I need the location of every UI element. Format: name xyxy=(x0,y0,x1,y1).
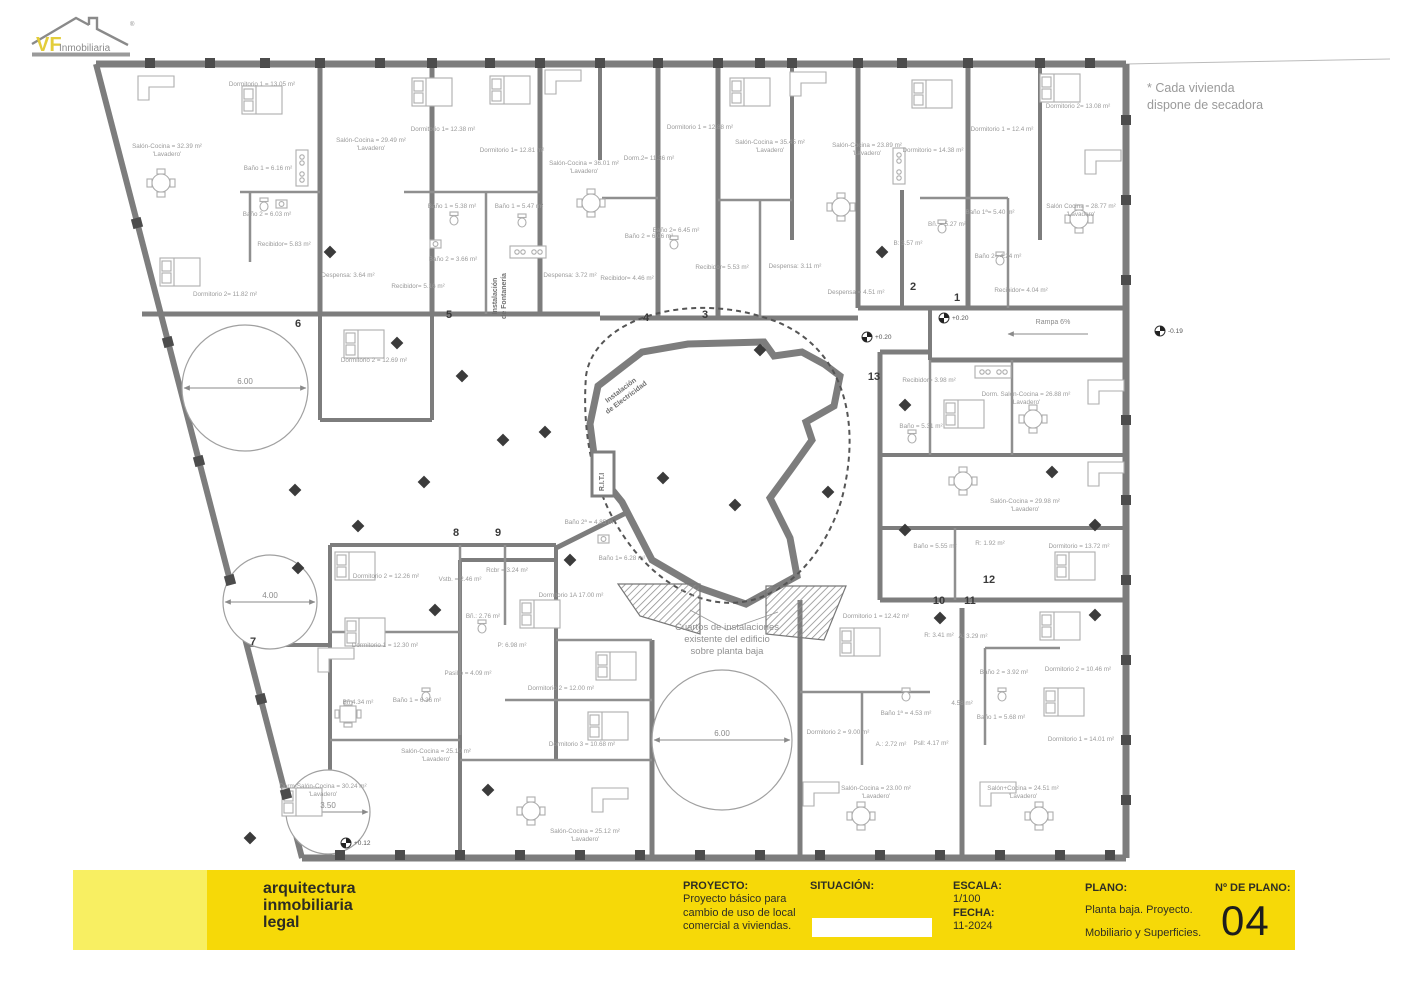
room-label: Salón-Cocina = 25.12 m² xyxy=(550,828,620,835)
room-label: Baño 1 = 6.36 m² xyxy=(393,697,441,704)
sheet-number-value: 04 xyxy=(1221,897,1291,945)
door-pier-diamond xyxy=(934,612,947,625)
sheet-title-line2: Mobiliario y Superficies. xyxy=(1085,927,1201,941)
room-label: Dormitorio 2 = 9.00 m² xyxy=(807,729,870,736)
room-label: Dormitorio 1 = 14.01 m² xyxy=(1048,736,1114,743)
sheet-title-line1: Planta baja. Proyecto. xyxy=(1085,904,1201,918)
dimension-label: 4.00 xyxy=(262,591,278,600)
door-pier-diamond xyxy=(899,524,912,537)
room-label: Dormitorio 1 = 13.05 m² xyxy=(229,81,295,88)
scale-date-field: ESCALA: 1/100 FECHA: 11-2024 xyxy=(953,880,1002,933)
door-pier-diamond xyxy=(391,337,404,350)
room-label: Dorm-Salón-Cocina = 30.24 m² xyxy=(279,783,366,790)
room-label: Bñ 4.34 m² xyxy=(343,699,374,706)
elevation-marker-icon xyxy=(939,313,949,323)
company-logo: VF Inmobiliaria ® xyxy=(30,14,150,58)
room-label: Recibidor= 5.16 m² xyxy=(391,283,444,290)
room-label: Salón-Cocina = 29.98 m² xyxy=(990,498,1060,505)
room-label: Dormitorio 2= 11.82 m² xyxy=(193,291,257,298)
room-label: Dormitorio 1 = 12.4 m² xyxy=(971,126,1034,133)
door-pier-diamond xyxy=(456,370,469,383)
door-pier-diamond xyxy=(418,476,431,489)
logo-registered-mark: ® xyxy=(130,21,135,28)
room-label: Baño 2ª = 4.85 m² xyxy=(565,519,616,526)
door-pier-diamond xyxy=(429,604,442,617)
room-label: Salón+Cocina = 24.51 m² xyxy=(987,785,1058,792)
dimension-label: 3.50 xyxy=(320,801,336,810)
room-label: Despensa: 3.11 m² xyxy=(769,263,822,270)
room-label: Recibidor= 4.46 m² xyxy=(600,275,653,282)
room-label: Dormitorio = 14.38 m² xyxy=(902,147,963,154)
project-line1: Proyecto básico para xyxy=(683,893,796,907)
unit-number: 8 xyxy=(453,527,459,539)
room-label: 'Lavadero' xyxy=(153,151,182,158)
unit-number: 7 xyxy=(250,636,256,648)
room-label: Baño 1 = 5.38 m² xyxy=(428,203,476,210)
room-label: Dormitorio 2 = 12.69 m² xyxy=(341,357,407,364)
room-label: Baño 2 = 3.92 m² xyxy=(980,669,1028,676)
room-label: Dormitorio 1= 12.38 m² xyxy=(411,126,476,133)
room-label: Dormitorio 2 = 12.00 m² xyxy=(528,685,594,692)
room-label: Baño 2= 6.45 m² xyxy=(653,227,700,234)
room-label: Recibidor= 5.53 m² xyxy=(695,264,748,271)
room-label: Bñ. = 5.27 m² xyxy=(928,221,966,228)
room-label: Recibidor= 4.04 m² xyxy=(994,287,1047,294)
unit-number: 6 xyxy=(295,318,301,330)
room-label: Baño 2 = 6.03 m² xyxy=(243,211,291,218)
door-pier-diamond xyxy=(324,246,337,259)
logo-underline xyxy=(32,53,130,57)
door-pier-diamond xyxy=(539,426,552,439)
room-label: 'Lavadero' xyxy=(422,756,451,763)
central-note-line: existente del edificio xyxy=(684,634,770,645)
room-label: Salón-Cocina = 23.00 m² xyxy=(841,785,911,792)
room-label: 'Lavadero' xyxy=(862,793,891,800)
room-label: 'Lavadero' xyxy=(571,836,600,843)
room-label: B: 3.57 m² xyxy=(893,240,922,247)
room-label: A: 3.29 m² xyxy=(958,633,987,640)
rotated-annotation: de Fontanería xyxy=(501,273,508,319)
door-pier-diamond xyxy=(899,399,912,412)
room-label: Baño 1 = 5.68 m² xyxy=(977,714,1025,721)
studio-name-line3: legal xyxy=(263,914,355,931)
rotated-annotation: Instalación xyxy=(492,278,499,315)
scale-value: 1/100 xyxy=(953,893,1002,907)
room-label: Dormitorio 2= 13.08 m² xyxy=(1046,103,1111,110)
door-pier-diamond xyxy=(564,554,577,567)
room-label: Dorm. Salón-Cocina = 26.88 m² xyxy=(982,391,1071,398)
room-label: Dormitorio 2 = 10.46 m² xyxy=(1045,666,1111,673)
room-label: Salón-Cocina = 29.49 m² xyxy=(336,137,406,144)
unit-number: 5 xyxy=(446,309,452,321)
room-label: 'Lavadero' xyxy=(570,168,599,175)
scale-label: ESCALA: xyxy=(953,880,1002,893)
door-pier-diamond xyxy=(244,832,257,845)
dimension-label: 6.00 xyxy=(237,377,253,386)
room-label: Dormitorio 1 = 12.30 m² xyxy=(352,642,418,649)
room-label: Baño 1ª = 4.53 m² xyxy=(881,710,932,717)
door-pier-diamond xyxy=(289,484,302,497)
rotated-annotation: R.I.T.I xyxy=(599,473,606,491)
room-label: P: 6.98 m² xyxy=(497,642,526,649)
door-pier-diamond xyxy=(1089,609,1102,622)
location-field: SITUACIÓN: xyxy=(810,880,874,893)
room-label: Salón Cocina = 28.77 m² xyxy=(1046,203,1115,210)
room-label: 'Lavadero' xyxy=(1067,211,1096,218)
room-label: Psll: 4.17 m² xyxy=(914,740,949,747)
sheet-number-label: Nº DE PLANO: xyxy=(1215,882,1291,895)
room-label: Baño 2 = 6.06 m² xyxy=(625,233,673,240)
property-line xyxy=(1126,59,1390,64)
room-label: Salón-Cocina = 23.89 m² xyxy=(832,142,902,149)
room-label: Dormitorio 1A 17.00 m² xyxy=(539,592,604,599)
elevation-marker-icon xyxy=(341,838,351,848)
floor-plan: Dormitorio 1 = 13.05 m²Salón-Cocina = 32… xyxy=(0,0,1415,1000)
logo-name-text: Inmobiliaria xyxy=(59,43,111,54)
central-note-line: sobre planta baja xyxy=(691,646,765,657)
room-label: Salón-Cocina = 35.45 m² xyxy=(735,139,805,146)
project-line2: cambio de uso de local xyxy=(683,907,796,921)
room-label: 'Lavadero' xyxy=(756,147,785,154)
unit-number: 11 xyxy=(964,595,976,607)
elevation-value: +0.20 xyxy=(952,315,969,322)
unit-number: 1 xyxy=(954,292,960,304)
room-label: Baño 1= 6.28 m² xyxy=(599,555,646,562)
location-label: SITUACIÓN: xyxy=(810,880,874,893)
dryer-note-line1: * Cada vivienda xyxy=(1147,80,1263,97)
studio-name: arquitectura inmobiliaria legal xyxy=(263,880,355,931)
unit-number: 3 xyxy=(702,309,708,321)
room-label: Salón-Cocina = 36.01 m² xyxy=(549,160,619,167)
room-label: 'Lavadero' xyxy=(357,145,386,152)
room-label: Salón-Cocina = 32.39 m² xyxy=(132,143,202,150)
central-note-line: Cuartos de instalaciones xyxy=(675,622,779,633)
drawing-sheet: Dormitorio 1 = 13.05 m²Salón-Cocina = 32… xyxy=(0,0,1415,1000)
elevation-value: +0.12 xyxy=(354,840,371,847)
door-pier-diamond xyxy=(352,520,365,533)
room-label: Baño 1ª= 5.40 m² xyxy=(965,209,1014,216)
title-block: arquitectura inmobiliaria legal PROYECTO… xyxy=(73,870,1295,950)
elevation-marker-icon xyxy=(1155,326,1165,336)
room-label: Baño 1 = 5.47 m² xyxy=(495,203,543,210)
room-label: Vstb. = 2.46 m² xyxy=(439,576,482,583)
room-label: Baño = 5.55 m² xyxy=(913,543,956,550)
room-label: 'Lavadero' xyxy=(1009,793,1038,800)
room-label: Recibidor= 5.83 m² xyxy=(257,241,310,248)
room-label: Baño 1 = 6.16 m² xyxy=(244,165,292,172)
door-pier-diamond xyxy=(876,246,889,259)
room-label: 4.58 m² xyxy=(951,700,972,707)
unit-number: 4 xyxy=(643,312,650,324)
elevation-value: +0.20 xyxy=(875,334,892,341)
room-label: Despensa: 3.72 m² xyxy=(543,272,596,279)
room-label: 'Lavadero' xyxy=(853,150,882,157)
door-pier-diamond xyxy=(822,486,835,499)
room-label: A.: 2.72 m² xyxy=(876,741,907,748)
room-label: Dormitorio 1= 12.81 m² xyxy=(480,147,545,154)
sheet-title-field: PLANO: Planta baja. Proyecto. Mobiliario… xyxy=(1085,882,1201,940)
project-line3: comercial a viviendas. xyxy=(683,920,796,934)
ramp-label: Rampa 6% xyxy=(1036,319,1071,326)
room-label: 'Lavadero' xyxy=(309,791,338,798)
studio-name-line1: arquitectura xyxy=(263,880,355,897)
date-label: FECHA: xyxy=(953,907,1002,920)
unit-number: 9 xyxy=(495,527,501,539)
unit-number: 12 xyxy=(983,574,995,586)
room-label: Dormitorio = 13.72 m² xyxy=(1048,543,1109,550)
room-label: 'Lavadero' xyxy=(1011,506,1040,513)
elevation-value: -0.19 xyxy=(1168,328,1183,335)
dimension-label: 6.00 xyxy=(714,729,730,738)
unit-number: 13 xyxy=(868,371,880,383)
room-label: Dormitorio 2 = 12.26 m² xyxy=(353,573,419,580)
room-label: Recibidor= 3.98 m² xyxy=(902,377,955,384)
elevation-marker-icon xyxy=(862,332,872,342)
room-label: Baño 2 = 3.66 m² xyxy=(429,256,477,263)
room-label: R: 1.92 m² xyxy=(975,540,1004,547)
room-label: Despensa = 4.51 m² xyxy=(828,289,885,296)
date-value: 11-2024 xyxy=(953,920,1002,934)
room-label: Salón-Cocina = 25.10 m² xyxy=(401,748,471,755)
door-pier-diamond xyxy=(1046,466,1059,479)
room-label: Baño = 5.31 m² xyxy=(899,423,942,430)
unit-number: 2 xyxy=(910,281,916,293)
room-label: Pasillo = 4.09 m² xyxy=(444,670,491,677)
room-label: Baño 2= 4.24 m² xyxy=(975,253,1022,260)
sheet-number-field: Nº DE PLANO: 04 xyxy=(1215,882,1291,945)
room-label: Rcbr = 3.24 m² xyxy=(486,567,528,574)
location-redacted-box xyxy=(812,918,932,937)
room-label: R: 3.41 m² xyxy=(924,632,953,639)
unit-number: 10 xyxy=(933,595,945,607)
room-label: Dormitorio 1 = 12.42 m² xyxy=(843,613,909,620)
title-block-light-panel xyxy=(73,870,207,950)
room-label: Despensa: 3.64 m² xyxy=(321,272,374,279)
room-label: Dorm.2= 11.36 m² xyxy=(624,155,674,162)
door-pier-diamond xyxy=(497,434,510,447)
room-label: Bñ.: 2.76 m² xyxy=(466,613,500,620)
sheet-title-label: PLANO: xyxy=(1085,882,1201,895)
dryer-note-line2: dispone de secadora xyxy=(1147,97,1263,114)
dryer-note: * Cada vivienda dispone de secadora xyxy=(1147,80,1263,114)
studio-name-line2: inmobiliaria xyxy=(263,897,355,914)
door-pier-diamond xyxy=(482,784,495,797)
project-field: PROYECTO: Proyecto básico para cambio de… xyxy=(683,880,796,934)
room-label: Dormitorio 1 = 12.88 m² xyxy=(667,124,733,131)
project-label: PROYECTO: xyxy=(683,880,796,893)
room-label: Dormitorio 3 = 10.68 m² xyxy=(549,741,615,748)
room-label: 'Lavadero' xyxy=(1012,399,1041,406)
